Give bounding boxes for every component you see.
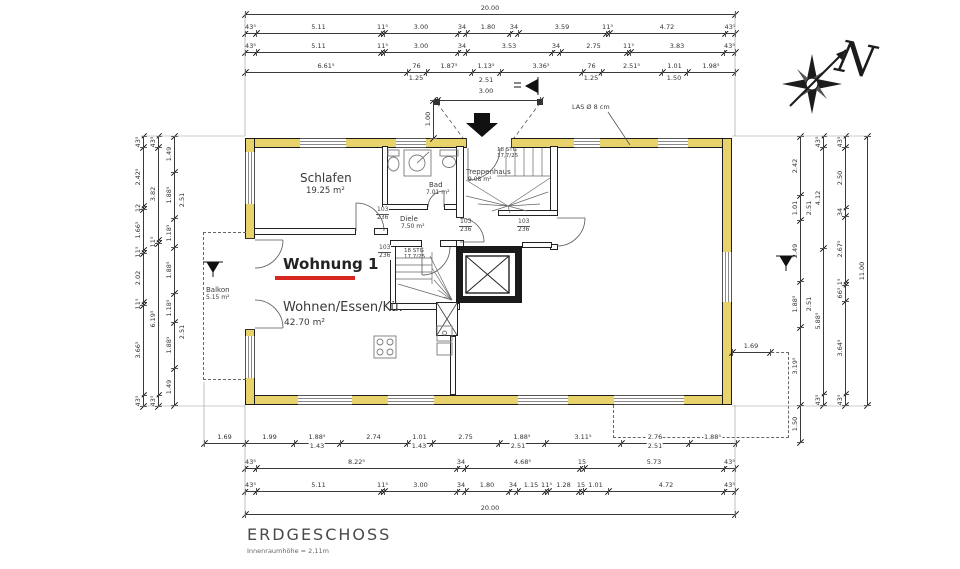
room-label: Wohnen/Essen/Kü. — [283, 301, 403, 316]
window — [300, 138, 346, 148]
dim-ext — [407, 440, 408, 447]
dim-ext — [583, 488, 584, 495]
dim-label: 43⁵ — [150, 135, 157, 148]
dim-label: 5.11 — [310, 482, 326, 489]
dim-label: 1.01 — [792, 199, 799, 215]
door-height: 236 — [517, 227, 530, 234]
dim-label: 1.88⁵ — [166, 185, 173, 204]
dim-label: 1.50 — [792, 415, 799, 431]
dim-ext — [500, 69, 501, 76]
dim-label: 43⁵ — [815, 393, 822, 406]
dim-ext — [687, 69, 688, 76]
dim-ext — [245, 11, 246, 18]
dim-ext — [735, 511, 736, 518]
dim-ext — [609, 30, 610, 37]
room-label: Treppenhaus — [466, 168, 511, 176]
wall-segment — [374, 228, 388, 235]
dim-ext — [171, 405, 178, 406]
dim-label: 6.61⁵ — [316, 63, 335, 70]
dim-label: 11.00 — [859, 260, 866, 281]
dim-label: 43⁵ — [723, 43, 736, 50]
drawing-note: Innenraumhöhe = 2,11m — [247, 547, 391, 555]
dim-label: 6.19⁵ — [150, 309, 157, 328]
dim-ext — [245, 440, 246, 447]
canopy-lines — [434, 99, 543, 138]
door-size-label: 103236 — [376, 207, 389, 222]
stair-note: 18 STG17,7/25 — [404, 248, 425, 261]
door-height: 236 — [376, 215, 389, 222]
dim-ext — [560, 49, 561, 56]
dim-ext — [735, 11, 736, 18]
dim-label: 43⁵ — [135, 135, 142, 148]
dim-label: 4.68⁵ — [513, 459, 532, 466]
dim-ext — [797, 136, 804, 137]
dim-label: 1.13⁵ — [476, 63, 495, 70]
dim-ext — [140, 305, 147, 306]
dim-label: 66⁵ — [837, 287, 844, 300]
dim-ext — [171, 172, 178, 173]
window — [245, 152, 255, 204]
window — [396, 138, 426, 148]
dim-label: 3.66⁵ — [135, 340, 142, 359]
dim-label: 43⁵ — [723, 482, 736, 489]
dim-ext — [842, 147, 849, 148]
dim-ext — [820, 405, 827, 406]
dim-ext — [466, 30, 467, 37]
dim-label: 1.49 — [166, 378, 173, 394]
dim-line — [158, 136, 159, 406]
dim-ext — [662, 69, 663, 76]
floor-plan-canvas: 20.0043⁵5.1111⁵3.00341.80343.5911⁵4.7243… — [0, 0, 960, 569]
dim-ext — [630, 49, 631, 56]
dim-ext — [384, 30, 385, 37]
dim-label: 1.00 — [425, 111, 432, 127]
dim-ext — [466, 49, 467, 56]
dim-ext — [140, 209, 147, 210]
dim-ext — [426, 69, 427, 76]
dim-label: 1.88⁵ — [512, 434, 531, 441]
dim-label: 1.18⁵ — [166, 223, 173, 242]
dim-ext — [384, 49, 385, 56]
dim-label: 1.28 — [555, 482, 571, 489]
wall-segment — [522, 242, 552, 248]
window — [658, 138, 688, 148]
stair-note-line: 17,7/25 — [404, 254, 425, 260]
room-area: 5.15 m² — [206, 295, 230, 302]
dim-label: 4.72 — [658, 482, 674, 489]
dim-ext — [842, 405, 849, 406]
dim-label: 5.73 — [646, 459, 662, 466]
dim-ext — [140, 147, 147, 148]
window — [614, 395, 684, 405]
wall-segment — [436, 302, 458, 336]
dim-ext — [294, 440, 295, 447]
dim-sublabel: 2.51 — [179, 324, 186, 340]
dim-sublabel: 1.43 — [411, 443, 427, 450]
dim-label: 43⁵ — [837, 393, 844, 406]
dim-ext — [732, 349, 733, 356]
stair-note: 18 STG17,7/25 — [497, 147, 518, 160]
compass-icon: N — [782, 31, 881, 114]
dim-label: 3.00 — [412, 482, 428, 489]
dim-ext — [155, 243, 162, 244]
dim-label: 3.53 — [501, 43, 517, 50]
wall-segment — [456, 246, 463, 303]
dim-label: 76 — [586, 63, 596, 70]
dim-label: 43⁵ — [150, 394, 157, 407]
dim-line — [732, 352, 770, 353]
dim-label: 3.64⁵ — [837, 338, 844, 357]
dim-ext — [256, 488, 257, 495]
dim-line — [245, 468, 735, 469]
dim-label: 43⁵ — [244, 482, 257, 489]
dim-sublabel: 2.51 — [806, 200, 813, 216]
dim-ext — [465, 488, 466, 495]
dim-ext — [842, 301, 849, 302]
dim-label: 1.87⁵ — [439, 63, 458, 70]
dim-label: 1.88⁵ — [166, 335, 173, 354]
dim-label: 1.49 — [166, 146, 173, 162]
dim-ext — [140, 406, 147, 407]
dim-ext — [770, 349, 771, 356]
dim-ext — [256, 49, 257, 56]
dim-label: 5.11 — [310, 43, 326, 50]
dim-ext — [171, 368, 178, 369]
dim-label: 1.80 — [480, 24, 496, 31]
dim-ext — [155, 406, 162, 407]
dim-ext — [517, 488, 518, 495]
door-size-label: 103236 — [459, 219, 472, 234]
dim-ext — [864, 136, 871, 137]
dim-sublabel: 2.51 — [806, 296, 813, 312]
north-letter: N — [831, 31, 882, 89]
dim-label: 43⁵ — [837, 135, 844, 148]
dim-label: 1.66⁵ — [135, 220, 142, 239]
entrance-arrow — [466, 113, 498, 137]
room-area: 9.08 m² — [468, 177, 492, 184]
dim-ext — [155, 147, 162, 148]
dim-label: 2.76 — [647, 434, 663, 441]
dim-ext — [601, 69, 602, 76]
door-size-label: 103236 — [378, 245, 391, 260]
dim-sublabel: 1.43 — [309, 443, 325, 450]
dim-ext — [797, 220, 804, 221]
elevator-shaft-x — [466, 256, 509, 293]
wall-segment — [498, 210, 558, 216]
window — [518, 395, 568, 405]
dim-label: 3.11⁵ — [573, 434, 592, 441]
dim-label: 20.00 — [480, 505, 501, 512]
dim-ext — [472, 69, 473, 76]
room-area: 19.25 m² — [306, 187, 345, 197]
dim-sublabel: 2.51 — [478, 77, 494, 84]
dim-ext — [171, 218, 178, 219]
dim-label: 1.98⁵ — [701, 63, 720, 70]
dim-ext — [340, 440, 341, 447]
apartment-label: Wohnung 1 — [283, 256, 378, 273]
title-block: ERDGESCHOSS Innenraumhöhe = 2,11m — [247, 525, 391, 555]
dim-sublabel: 1.25 — [583, 75, 599, 82]
dim-ext — [256, 465, 257, 472]
dim-ext — [735, 69, 736, 76]
door-size-label: 103236 — [517, 219, 530, 234]
drawing-title: ERDGESCHOSS — [247, 525, 391, 544]
dim-ext — [204, 440, 205, 447]
dim-line — [823, 136, 824, 405]
dim-label: 2.02 — [135, 269, 142, 285]
dim-ext — [548, 488, 549, 495]
dim-label: 20.00 — [480, 5, 501, 12]
dim-label: 43⁵ — [244, 24, 257, 31]
dim-ext — [499, 440, 500, 447]
wall-segment — [456, 246, 522, 253]
dim-line — [174, 136, 175, 405]
dim-label: 5.11 — [310, 24, 326, 31]
room-label: Schlafen — [300, 172, 352, 186]
window — [722, 252, 732, 302]
dim-ext — [842, 216, 849, 217]
dim-label: 3.83 — [669, 43, 685, 50]
dim-label: 1.88⁵ — [703, 434, 722, 441]
wall-segment — [450, 336, 456, 395]
dim-label: 1.88⁵ — [792, 294, 799, 313]
apartment-underline — [275, 276, 355, 280]
dim-label: 43⁵ — [244, 459, 257, 466]
dim-ext — [256, 30, 257, 37]
dim-label: 4.72 — [659, 24, 675, 31]
dim-label: 1.69 — [216, 434, 232, 441]
dim-label: 1.15 — [523, 482, 539, 489]
dim-ext — [140, 253, 147, 254]
dim-label: 15 — [577, 459, 587, 466]
dim-label: 2.51⁵ — [622, 63, 641, 70]
dim-ext — [797, 327, 804, 328]
dim-line — [437, 100, 540, 101]
dim-line — [245, 514, 735, 515]
room-area: 7.50 m² — [401, 224, 425, 231]
dim-label: 2.75 — [585, 43, 601, 50]
dim-ext — [465, 465, 466, 472]
dim-ext — [735, 49, 736, 56]
dim-sublabel: 2.51 — [179, 192, 186, 208]
dim-label: 2.67⁵ — [837, 239, 844, 258]
dim-sublabel: 1.25 — [408, 75, 424, 82]
dim-ext — [797, 281, 804, 282]
stair-note-line: 17,7/25 — [497, 153, 518, 159]
dim-ext — [430, 100, 437, 101]
dim-ext — [430, 138, 437, 139]
dim-line — [245, 33, 735, 34]
dim-ext — [820, 248, 827, 249]
dim-label: 43⁵ — [815, 135, 822, 148]
dim-label: 3.19⁵ — [792, 356, 799, 375]
window — [298, 395, 352, 405]
dim-label: 3.82 — [150, 185, 157, 201]
dim-label: 5.88⁵ — [815, 311, 822, 330]
room-area: 7.01 m² — [426, 190, 450, 197]
dim-label: 1.01 — [587, 482, 603, 489]
dim-ext — [608, 488, 609, 495]
dim-sublabel: 1.50 — [666, 75, 682, 82]
dim-ext — [820, 147, 827, 148]
dim-ext — [621, 440, 622, 447]
dim-ext — [518, 30, 519, 37]
dim-line — [845, 136, 846, 405]
dim-line — [800, 136, 801, 442]
dim-label: 43⁵ — [723, 459, 736, 466]
door-opening — [245, 238, 255, 330]
dim-label: 76 — [411, 63, 421, 70]
wall-segment — [515, 246, 522, 303]
dim-label: 3.00 — [413, 24, 429, 31]
door-height: 236 — [459, 227, 472, 234]
dim-label: 43⁵ — [135, 394, 142, 407]
dim-line — [143, 136, 144, 406]
dim-ext — [797, 195, 804, 196]
vent-note: LAS Ø 8 cm — [572, 104, 610, 111]
wall-segment — [456, 146, 464, 218]
dim-label: 1.69 — [743, 343, 759, 350]
dim-label: 1.01 — [411, 434, 427, 441]
dim-ext — [584, 465, 585, 472]
room-label: Bad — [429, 181, 443, 189]
dim-ext — [171, 247, 178, 248]
dim-label: 3.36⁵ — [531, 63, 550, 70]
dashed-outline — [613, 405, 789, 438]
dim-label: 4.12 — [815, 189, 822, 205]
wall-segment — [440, 240, 457, 247]
room-label: Balkon — [206, 286, 230, 294]
window — [388, 395, 434, 405]
dim-label: 8.22⁵ — [347, 459, 366, 466]
bath-fixtures — [388, 150, 458, 176]
dim-ext — [735, 465, 736, 472]
dim-line — [245, 491, 735, 492]
window — [574, 138, 600, 148]
dim-ext — [689, 440, 690, 447]
dim-label: 2.49 — [792, 242, 799, 258]
wall-segment — [382, 146, 388, 210]
dim-ext — [245, 69, 246, 76]
dim-label: 1.18⁵ — [166, 298, 173, 317]
dim-label: 1.88⁵ — [166, 260, 173, 279]
wall-segment — [254, 228, 356, 235]
dim-ext — [736, 440, 737, 447]
dim-label: 2.42⁵ — [135, 167, 142, 186]
dim-sublabel: 3.00 — [478, 88, 494, 95]
window — [245, 336, 255, 378]
dim-label: 1.80 — [479, 482, 495, 489]
dim-ext — [171, 322, 178, 323]
dim-label: 1.88⁵ — [307, 434, 326, 441]
dim-line — [245, 52, 735, 53]
dim-label: 1.99 — [261, 434, 277, 441]
dashed-outline — [203, 232, 246, 380]
dim-label: 3.59 — [554, 24, 570, 31]
dim-sublabel: 2.51 — [647, 443, 663, 450]
room-area: 42.70 m² — [284, 318, 325, 328]
dim-label: 2.75 — [457, 434, 473, 441]
dim-ext — [545, 440, 546, 447]
dim-label: 3.00 — [413, 43, 429, 50]
dim-ext — [735, 30, 736, 37]
wall-segment — [456, 296, 522, 303]
dim-ext — [171, 293, 178, 294]
door-height: 236 — [378, 253, 391, 260]
dim-ext — [864, 405, 871, 406]
room-label: Diele — [400, 215, 418, 223]
dim-ext — [245, 511, 246, 518]
dim-label: 2.74 — [365, 434, 381, 441]
dim-label: 15 — [576, 482, 586, 489]
dim-ext — [171, 136, 178, 137]
dim-ext — [432, 440, 433, 447]
dim-ext — [797, 442, 804, 443]
dim-ext — [735, 488, 736, 495]
dim-ext — [797, 405, 804, 406]
dim-sublabel: 2.51 — [510, 443, 526, 450]
dim-line — [433, 100, 434, 138]
dim-label: 2.50 — [837, 169, 844, 185]
dim-line — [867, 136, 868, 405]
dim-label: 1.01 — [666, 63, 682, 70]
dim-ext — [540, 97, 541, 104]
dim-label: 43⁵ — [244, 43, 257, 50]
dim-label: 2.42 — [792, 157, 799, 173]
dim-line — [245, 14, 735, 15]
dim-ext — [384, 488, 385, 495]
wall-segment — [550, 146, 558, 216]
